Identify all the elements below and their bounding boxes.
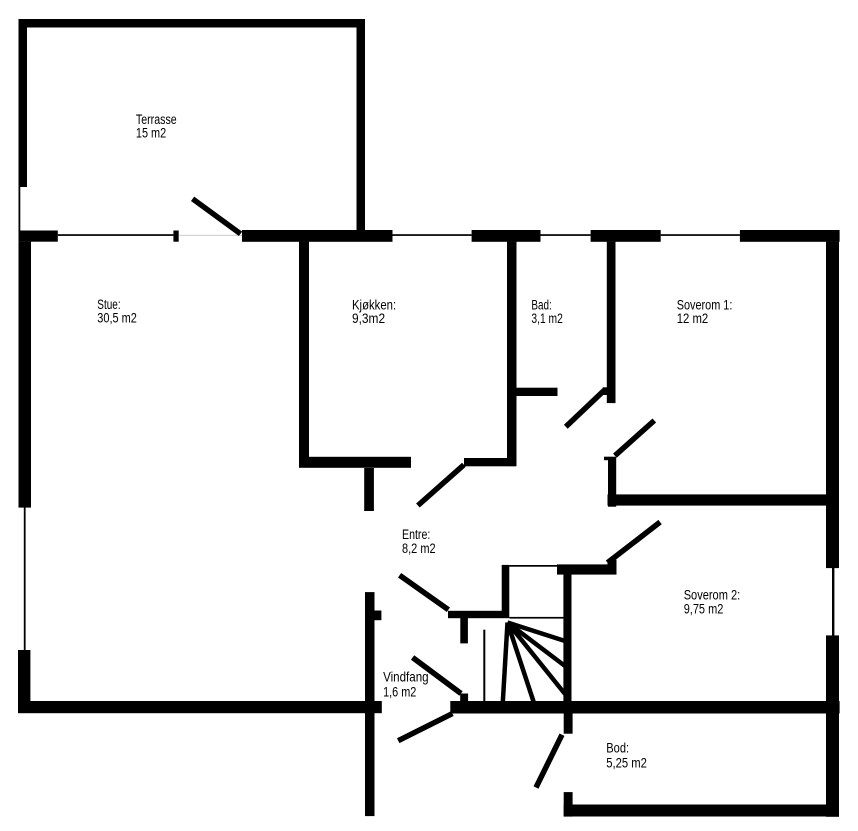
svg-text:3,1 m2: 3,1 m2 bbox=[531, 311, 562, 326]
svg-text:9,3m2: 9,3m2 bbox=[352, 311, 385, 326]
svg-text:12 m2: 12 m2 bbox=[677, 311, 709, 326]
svg-text:9,75 m2: 9,75 m2 bbox=[684, 602, 724, 617]
svg-text:8,2 m2: 8,2 m2 bbox=[402, 541, 436, 556]
svg-text:1,6 m2: 1,6 m2 bbox=[383, 684, 416, 699]
svg-text:Vindfang: Vindfang bbox=[383, 669, 429, 684]
svg-text:Bod:: Bod: bbox=[606, 741, 629, 756]
svg-text:30,5 m2: 30,5 m2 bbox=[97, 311, 137, 326]
svg-text:Soverom 2:: Soverom 2: bbox=[684, 588, 741, 603]
svg-text:15 m2: 15 m2 bbox=[136, 126, 166, 141]
svg-text:5,25 m2: 5,25 m2 bbox=[606, 756, 647, 771]
svg-text:Entre:: Entre: bbox=[402, 527, 430, 542]
